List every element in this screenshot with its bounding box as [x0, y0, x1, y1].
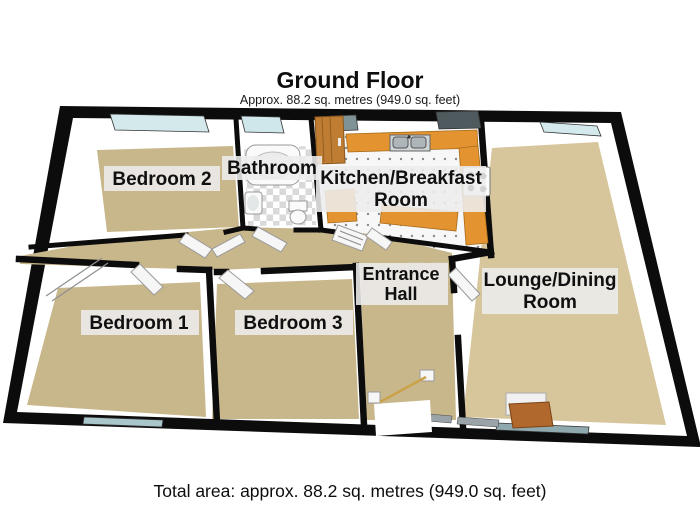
room-label-bedroom-1: Bedroom 1 — [81, 310, 199, 335]
svg-text:Room: Room — [523, 292, 577, 313]
svg-text:Bedroom 3: Bedroom 3 — [243, 313, 342, 334]
page-subtitle: Approx. 88.2 sq. metres (949.0 sq. feet) — [240, 93, 460, 107]
wall-bedroom1-bedroom3 — [209, 270, 217, 423]
floorplan-page: Ground Floor Approx. 88.2 sq. metres (94… — [0, 0, 700, 509]
room-label-bathroom: Bathroom — [222, 156, 322, 180]
front-door-opening — [374, 400, 432, 436]
kitchen-window-right — [436, 111, 481, 129]
svg-text:Lounge/Dining: Lounge/Dining — [484, 270, 617, 291]
room-floor-bedroom-1 — [27, 282, 206, 417]
svg-text:Entrance: Entrance — [362, 264, 439, 284]
room-floor-bedroom-3 — [212, 279, 359, 419]
svg-text:Kitchen/Breakfast: Kitchen/Breakfast — [320, 168, 482, 189]
washbasin-bowl — [247, 195, 259, 211]
room-label-bedroom-3: Bedroom 3 — [235, 310, 353, 335]
front-door-frame-left — [368, 392, 380, 403]
svg-text:Room: Room — [374, 190, 428, 211]
bedroom2-window — [110, 114, 209, 132]
bathroom-window — [241, 116, 284, 133]
toilet-bowl — [290, 210, 306, 224]
total-area-text: Total area: approx. 88.2 sq. metres (949… — [154, 481, 547, 501]
kitchen-sink — [390, 135, 430, 151]
lounge-top-window — [540, 122, 601, 136]
svg-text:Hall: Hall — [384, 284, 417, 304]
floor-plan: Ground Floor Approx. 88.2 sq. metres (94… — [0, 0, 700, 509]
room-label-lounge-dining-room: Lounge/Dining Room — [482, 268, 618, 314]
room-label-entrance-hall: Entrance Hall — [356, 263, 448, 305]
svg-text:Bedroom 2: Bedroom 2 — [112, 169, 211, 190]
page-title: Ground Floor — [277, 67, 424, 93]
fireplace-hearth — [509, 402, 553, 428]
room-label-kitchen-breakfast-room: Kitchen/Breakfast Room — [316, 166, 486, 212]
svg-text:Bathroom: Bathroom — [227, 158, 317, 179]
room-label-bedroom-2: Bedroom 2 — [104, 166, 220, 191]
svg-text:Bedroom 1: Bedroom 1 — [89, 313, 189, 334]
